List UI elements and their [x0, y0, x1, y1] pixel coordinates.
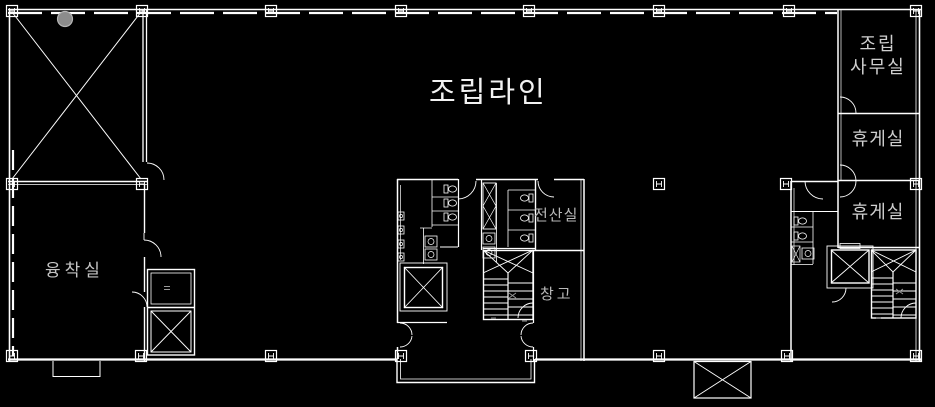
double-door-arc — [521, 323, 533, 347]
lift-cross — [151, 311, 191, 352]
door-arc — [832, 288, 846, 302]
stair-treads — [871, 278, 893, 314]
label-lounge-upper: 휴게실 — [838, 129, 918, 152]
annex-lift — [147, 270, 195, 356]
door-arc — [132, 292, 147, 307]
exterior-stair-box — [694, 362, 751, 399]
double-door-arc — [400, 323, 412, 347]
top-left-equipment-room — [8, 9, 164, 185]
gray-dot-marker — [58, 12, 73, 27]
door-arc — [147, 163, 164, 180]
label-storage-room: 창고 — [540, 285, 574, 304]
diagonal-cross — [694, 362, 751, 399]
door-arc — [840, 181, 856, 197]
label-computer-room: 전산실 — [534, 206, 578, 225]
label-assembly-line: 조립라인 — [429, 74, 548, 110]
door-arc — [518, 303, 533, 318]
door-arc — [805, 181, 823, 199]
door-arc — [840, 165, 856, 181]
diagonal-cross — [12, 12, 141, 179]
label-assembly-office: 조립 사무실 — [838, 33, 918, 79]
door-arc — [901, 303, 916, 318]
floor-plan: 조립라인 조립 사무실 휴게실 휴게실 융착실 전산실 창고 — [0, 0, 935, 407]
elevator-cross — [831, 250, 869, 283]
exterior-step — [53, 361, 100, 377]
door-arc — [144, 233, 161, 257]
grid-column-markers — [7, 6, 922, 362]
stair-treads — [483, 279, 508, 315]
duct-hatch — [483, 183, 496, 229]
door-arc — [458, 181, 476, 199]
door-arc — [538, 181, 554, 197]
label-lounge-lower: 휴게실 — [838, 202, 918, 225]
stair-treads — [893, 283, 916, 315]
fusion-room-walls — [132, 184, 161, 361]
label-fusion-room: 융착실 — [45, 261, 104, 282]
elevator-cross — [404, 267, 443, 308]
door-arc — [840, 97, 856, 113]
floor-plan-linework — [0, 0, 935, 407]
